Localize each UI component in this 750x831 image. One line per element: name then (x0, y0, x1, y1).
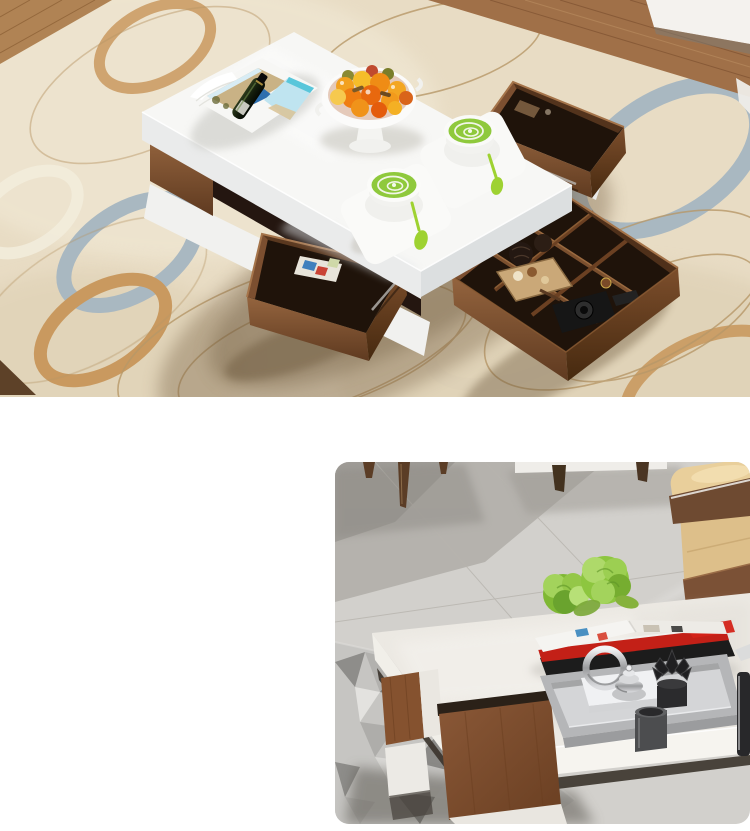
wicker-ball (509, 242, 533, 266)
photo-top (0, 0, 750, 397)
product-gallery (0, 0, 750, 831)
wicker-ball (534, 234, 552, 252)
watch (601, 278, 611, 288)
photo-bottom (335, 462, 750, 824)
grey-cup (635, 707, 667, 753)
